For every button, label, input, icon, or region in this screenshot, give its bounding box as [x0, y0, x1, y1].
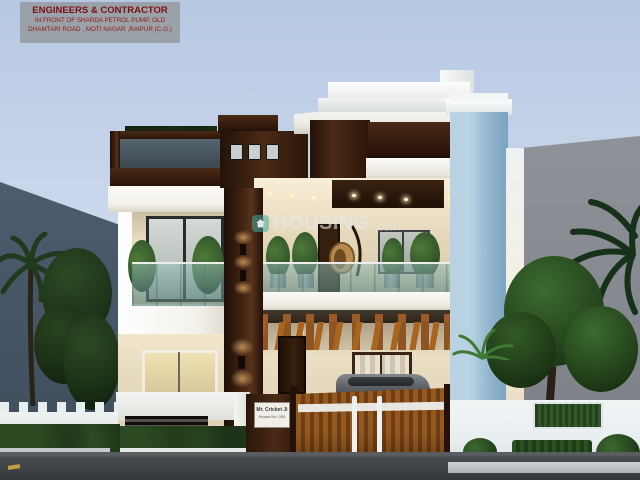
gate-handle [352, 396, 357, 454]
balcony-glass-railing [254, 262, 460, 296]
sconce-glow [233, 230, 253, 245]
watermark-brand: HOUSING [273, 212, 370, 235]
nameplate-number: House No. 000 [255, 414, 289, 419]
balcony-interior [254, 178, 460, 296]
blue-tower-cap-step [450, 93, 508, 101]
recessed-light [404, 198, 408, 201]
stair-room-window [266, 144, 279, 160]
header-title: ENGINEERS & CONTRACTOR [20, 5, 180, 17]
house-nameplate: Mr. Cricket Ji House No. 000 [254, 402, 290, 428]
wall-sconce [238, 356, 245, 369]
header-address-line-1: IN FRONT OF SHARDA PETROL PUMP, OLD [20, 17, 180, 26]
wall-sconce [240, 244, 246, 255]
left-balcony-glass-railing [132, 262, 226, 306]
window-mullion [178, 352, 180, 394]
stair-room-window [248, 144, 261, 160]
sconce-glow [230, 338, 254, 356]
contractor-header-badge: ENGINEERS & CONTRACTOR IN FRONT OF SHARD… [20, 2, 180, 43]
car-windshield [348, 377, 414, 386]
balcony-wood-ceiling [332, 180, 444, 208]
wall-sconce [240, 270, 246, 281]
ground-floor-window-left [142, 350, 218, 396]
balcony-slab [250, 292, 468, 312]
gate-handle [377, 396, 382, 454]
recessed-light [312, 196, 316, 199]
fern-plant [452, 316, 516, 360]
recessed-light [352, 194, 356, 197]
tree-left [34, 244, 120, 420]
roof-parapet-box [218, 115, 278, 132]
nameplate-owner: Mr. Cricket Ji [255, 407, 289, 414]
housing-home-icon [252, 215, 269, 232]
vertical-garden-panel [533, 402, 603, 429]
right-sidewalk [448, 462, 640, 473]
watermark-suffix: .com [374, 220, 400, 234]
recessed-light [268, 192, 272, 195]
header-address-line-2: DHAMTARI ROAD , MOTI NAGAR ,RAIPUR (C.G.… [20, 26, 180, 35]
stair-room-window [230, 144, 243, 160]
housing-watermark: HOUSING .com [252, 212, 400, 235]
sconce-glow [233, 281, 253, 295]
architectural-render: Mr. Cricket Ji House No. 000 HOUSING [0, 0, 640, 480]
sconce-glow [230, 369, 254, 388]
recessed-light [290, 194, 294, 197]
sconce-glow [233, 255, 253, 269]
terrace-base-band [110, 168, 230, 188]
recessed-light [378, 196, 382, 199]
